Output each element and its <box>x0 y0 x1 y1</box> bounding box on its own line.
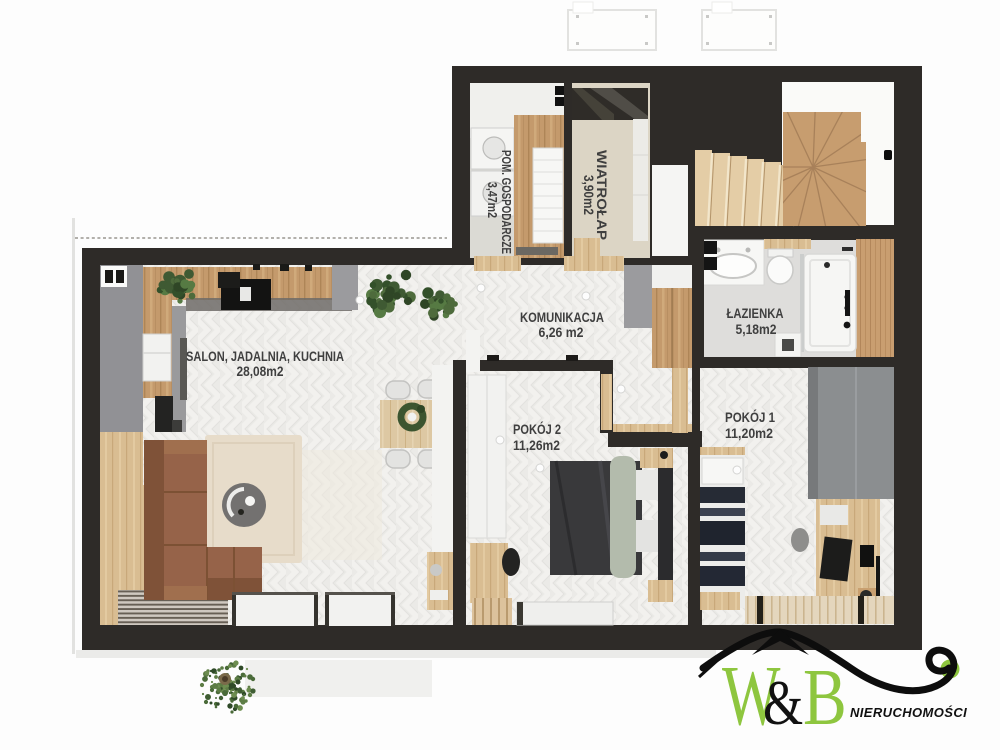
svg-text:SALON, JADALNIA, KUCHNIA: SALON, JADALNIA, KUCHNIA <box>186 348 344 364</box>
svg-text:&: & <box>763 669 803 738</box>
svg-text:POKÓJ 1: POKÓJ 1 <box>725 408 775 425</box>
svg-text:POM. GOSPODARCZE: POM. GOSPODARCZE <box>499 150 513 254</box>
svg-text:B: B <box>803 653 847 742</box>
svg-text:POKÓJ 2: POKÓJ 2 <box>513 420 561 437</box>
svg-text:3,47m2: 3,47m2 <box>485 182 499 218</box>
svg-text:KOMUNIKACJA: KOMUNIKACJA <box>520 309 604 325</box>
svg-text:6,26 m2: 6,26 m2 <box>539 324 584 340</box>
svg-text:3,90m2: 3,90m2 <box>581 175 596 215</box>
svg-text:ŁAZIENKA: ŁAZIENKA <box>727 305 784 321</box>
svg-text:NIERUCHOMOŚCI: NIERUCHOMOŚCI <box>850 705 967 720</box>
svg-text:11,26m2: 11,26m2 <box>513 437 560 453</box>
svg-text:5,18m2: 5,18m2 <box>736 321 777 337</box>
svg-text:28,08m2: 28,08m2 <box>237 363 284 379</box>
svg-text:11,20m2: 11,20m2 <box>725 425 773 441</box>
